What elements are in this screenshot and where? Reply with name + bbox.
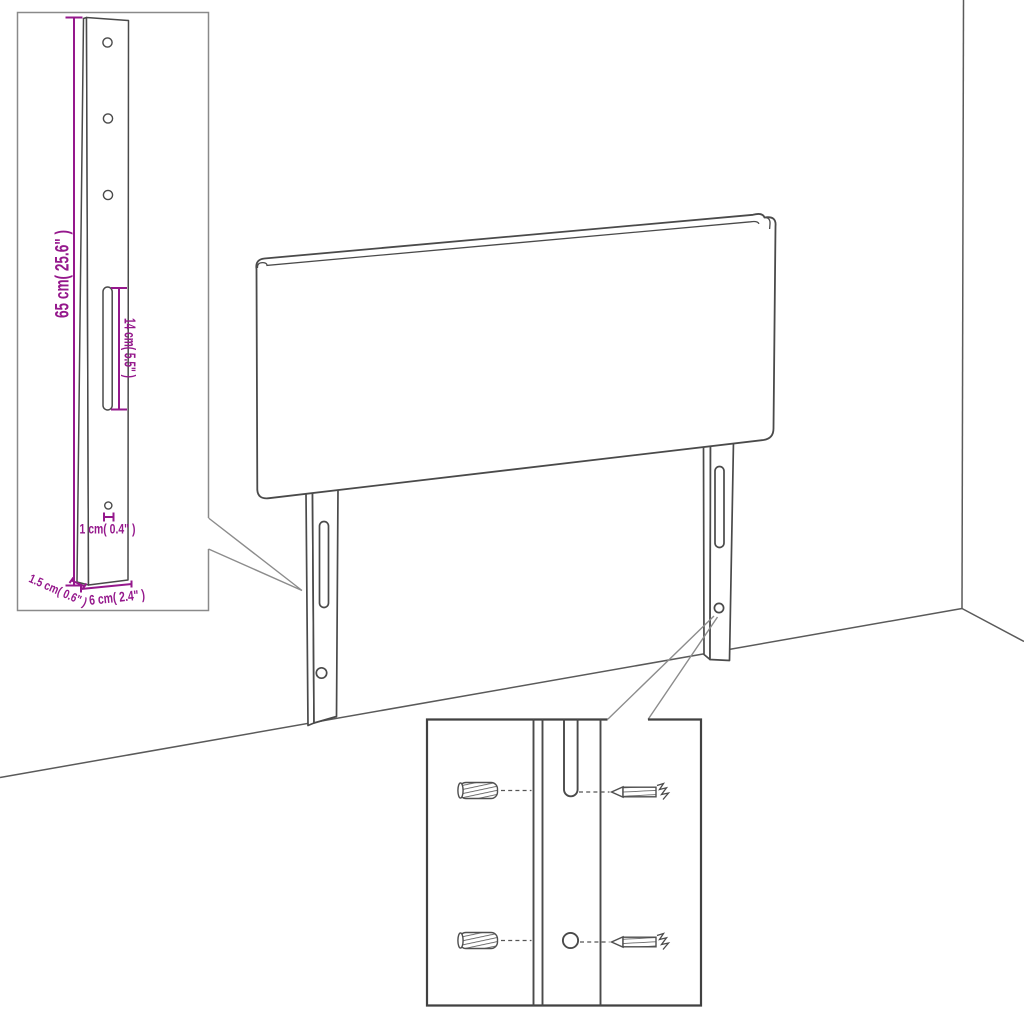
- floor-line-right: [962, 609, 1024, 642]
- dim-slot-label: 14 cm( 5.5" ): [121, 318, 138, 378]
- inset-enlarged-hole: [563, 933, 578, 948]
- wall-corner-line: [962, 0, 964, 609]
- inset-leg-hole-3: [103, 190, 112, 199]
- inset-leg-hole-2: [103, 114, 112, 123]
- inset-leg-hole-1: [103, 38, 112, 47]
- headboard-right-leg: [704, 441, 734, 661]
- dim-hole-label: 1 cm( 0.4" ): [80, 521, 136, 537]
- inset-leg-slot: [103, 287, 112, 410]
- left-leg-slot: [320, 522, 329, 608]
- diagram-stage: 65 cm( 25.6" ) 14 cm( 5.5" ) 1 cm( 0.4" …: [0, 0, 1024, 1024]
- callout-left-leg: [209, 518, 303, 591]
- mounting-detail-inset: [427, 720, 701, 1006]
- headboard-diagram: 65 cm( 25.6" ) 14 cm( 5.5" ) 1 cm( 0.4" …: [0, 0, 1024, 1024]
- right-leg-hole: [714, 603, 723, 612]
- leg-detail-inset: 65 cm( 25.6" ) 14 cm( 5.5" ) 1 cm( 0.4" …: [18, 13, 209, 611]
- headboard-left-leg: [306, 489, 338, 726]
- headboard-panel: [256, 214, 775, 498]
- dim-height-label: 65 cm( 25.6" ): [52, 230, 74, 318]
- left-leg-hole: [316, 668, 326, 678]
- callout-lines: [209, 518, 718, 720]
- right-leg-slot: [715, 467, 724, 548]
- headboard-outline: [256, 214, 775, 498]
- inset-leg-small-hole: [105, 502, 112, 509]
